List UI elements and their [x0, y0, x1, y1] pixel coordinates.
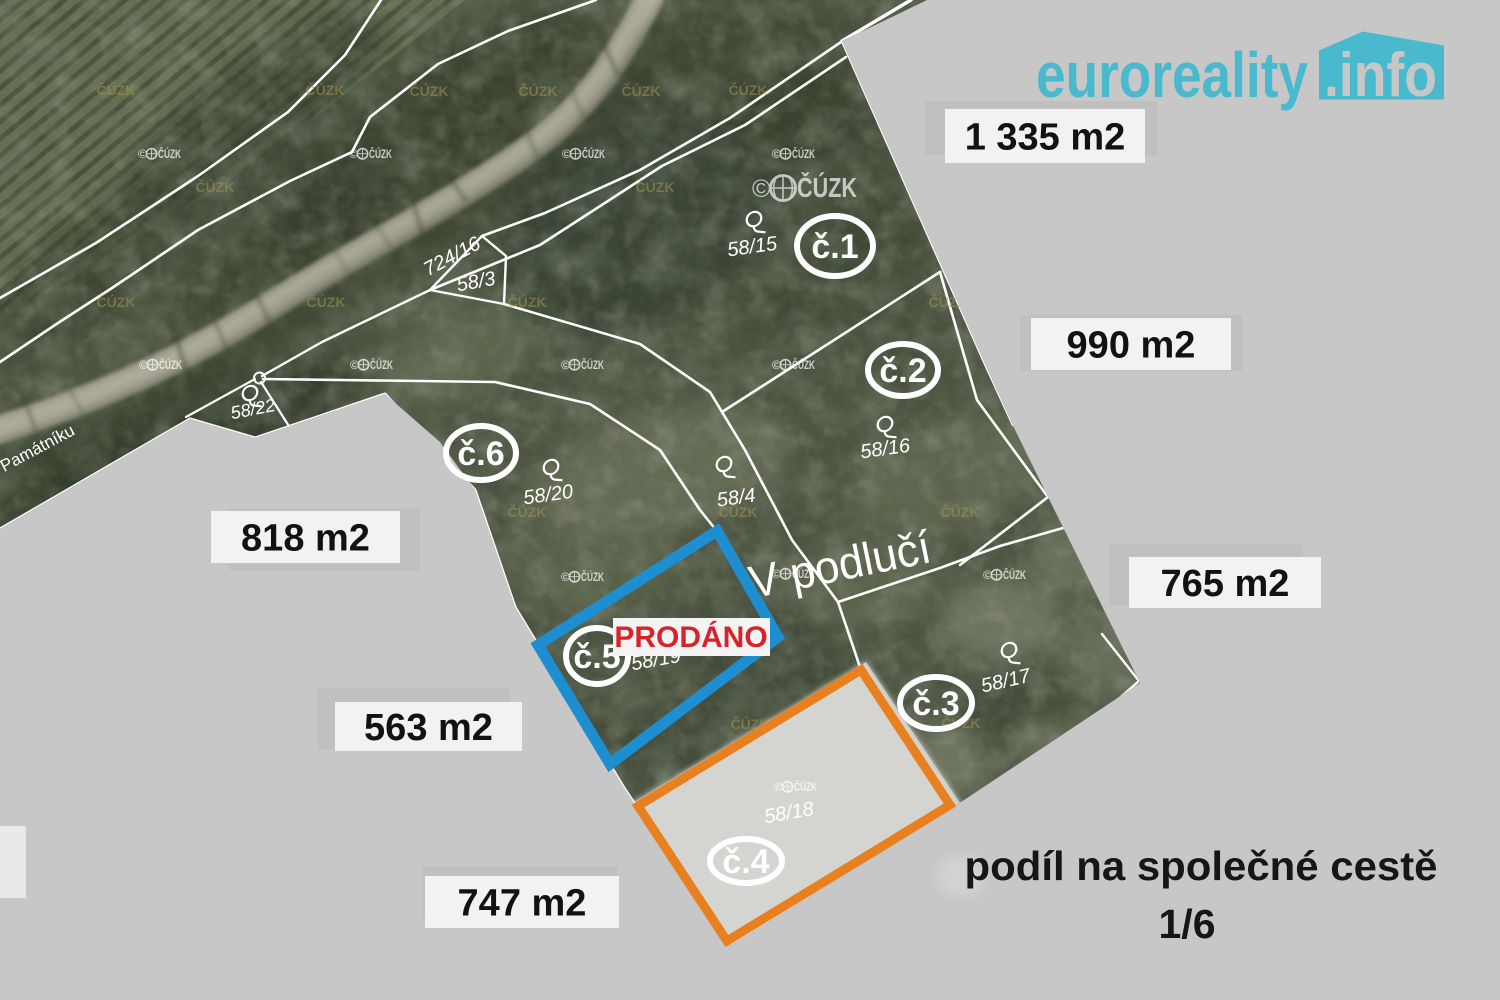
svg-text:563 m2: 563 m2 [364, 707, 493, 749]
svg-text:ČÚZK: ČÚZK [941, 503, 980, 520]
svg-text:č.3: č.3 [912, 685, 959, 723]
svg-text:č.1: č.1 [811, 228, 858, 266]
svg-text:ČÚZK: ČÚZK [410, 82, 449, 99]
svg-text:990 m2: 990 m2 [1067, 325, 1196, 367]
svg-text:ČÚZK: ČÚZK [196, 178, 235, 195]
svg-text:1 335 m2: 1 335 m2 [965, 117, 1126, 159]
svg-text:č.2: č.2 [879, 352, 926, 390]
svg-text:ČÚZK: ČÚZK [307, 293, 346, 310]
svg-text:ČÚZK: ČÚZK [622, 82, 661, 99]
svg-text:ČÚZK: ČÚZK [508, 503, 547, 520]
svg-text:ČÚZK: ČÚZK [97, 81, 136, 98]
svg-text:č.6: č.6 [457, 435, 504, 473]
svg-text:©: © [752, 175, 771, 203]
svg-text:PRODÁNO: PRODÁNO [614, 620, 767, 654]
svg-text:747 m2: 747 m2 [458, 883, 587, 925]
svg-text:ČÚZK: ČÚZK [97, 293, 136, 310]
svg-text:č.4: č.4 [722, 843, 769, 881]
svg-text:ČÚZK: ČÚZK [729, 81, 768, 98]
svg-text:ČÚZK: ČÚZK [719, 503, 758, 520]
svg-text:ČÚZK: ČÚZK [519, 82, 558, 99]
svg-text:818 m2: 818 m2 [241, 518, 370, 560]
svg-text:765 m2: 765 m2 [1161, 563, 1290, 605]
svg-text:podíl na společné cestě: podíl na společné cestě [965, 843, 1438, 889]
svg-text:1/6: 1/6 [1159, 901, 1216, 947]
svg-text:euroreality: euroreality [1036, 39, 1308, 111]
svg-text:ČÚZK: ČÚZK [306, 81, 345, 98]
svg-text:ČÚZK: ČÚZK [636, 178, 675, 195]
svg-text:.info: .info [1324, 41, 1437, 110]
svg-text:ČÚZK: ČÚZK [797, 171, 857, 203]
svg-text:ČÚZK: ČÚZK [508, 293, 547, 310]
